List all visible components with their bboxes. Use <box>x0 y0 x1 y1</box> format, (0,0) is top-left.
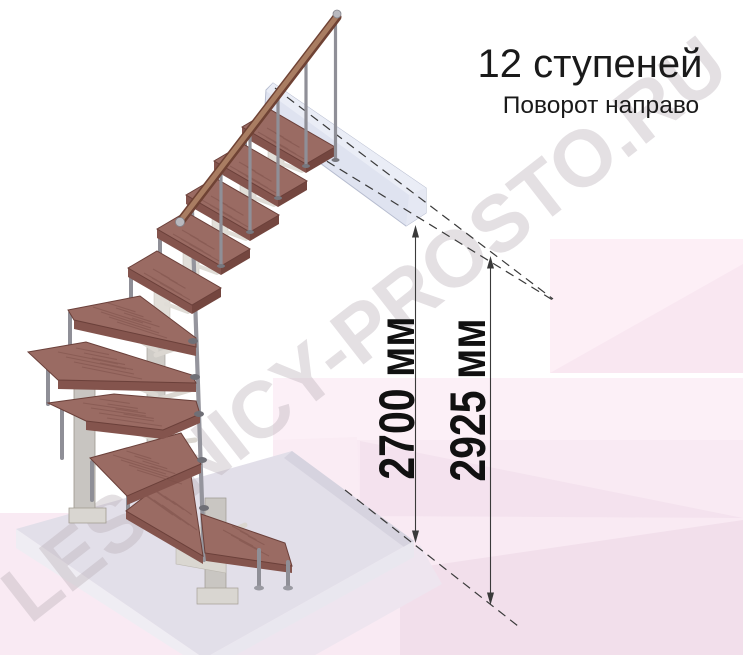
svg-text:Поворот направо: Поворот направо <box>503 92 699 119</box>
svg-text:2925 мм: 2925 мм <box>440 318 496 481</box>
svg-text:12 ступеней: 12 ступеней <box>478 42 703 86</box>
svg-text:2700 мм: 2700 мм <box>369 316 425 479</box>
